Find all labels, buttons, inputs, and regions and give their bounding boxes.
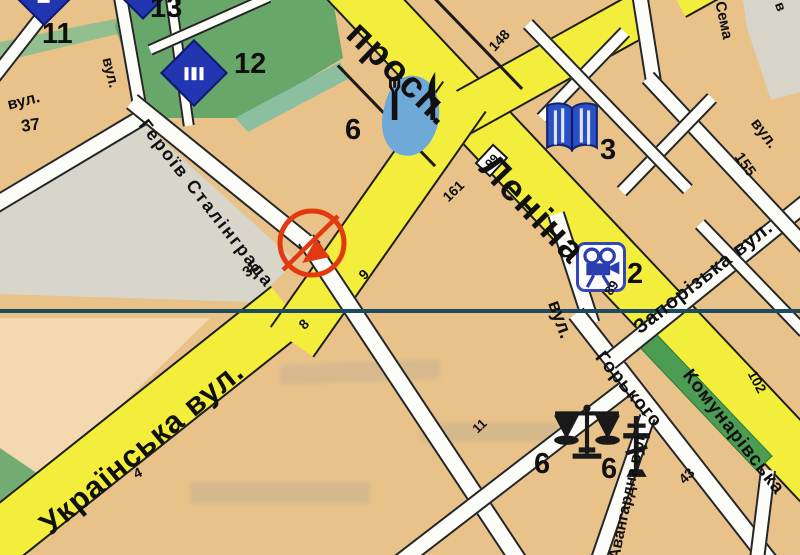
diamond-glyph	[185, 67, 204, 80]
street-label-left-vul: вул.	[6, 90, 42, 113]
house-number: 148	[486, 27, 512, 54]
poi-number-11: 11	[42, 20, 73, 49]
house-number: 161	[440, 178, 467, 204]
poi-number-library: 3	[600, 136, 616, 165]
street-label-semaforna: Сема	[712, 0, 735, 41]
marker-arrowhead	[302, 239, 330, 263]
poi-number-13: 13	[150, 0, 182, 23]
print-bleed	[190, 482, 370, 504]
diamond-glyph	[38, 0, 50, 3]
city-map[interactable]: 99 просп. Леніна Українська вул. Героїв …	[0, 0, 800, 555]
poi-number-cinema: 2	[627, 260, 643, 289]
print-bleed	[280, 359, 441, 385]
street-label-horkoho-prefix: вул.	[544, 298, 575, 341]
gray-block-northeast	[735, 0, 800, 105]
poi-number-church: 6	[601, 455, 617, 484]
poi-number-12: 12	[234, 50, 266, 79]
house-number: 37	[20, 115, 41, 134]
book-icon[interactable]	[543, 100, 601, 156]
poi-number-restaurant: 6	[345, 116, 361, 145]
red-location-marker[interactable]	[272, 205, 352, 285]
street-label-park-vul: вул.	[99, 56, 121, 89]
poi-number-court: 6	[534, 450, 550, 479]
street-label-right-vul: вул.	[747, 116, 779, 152]
